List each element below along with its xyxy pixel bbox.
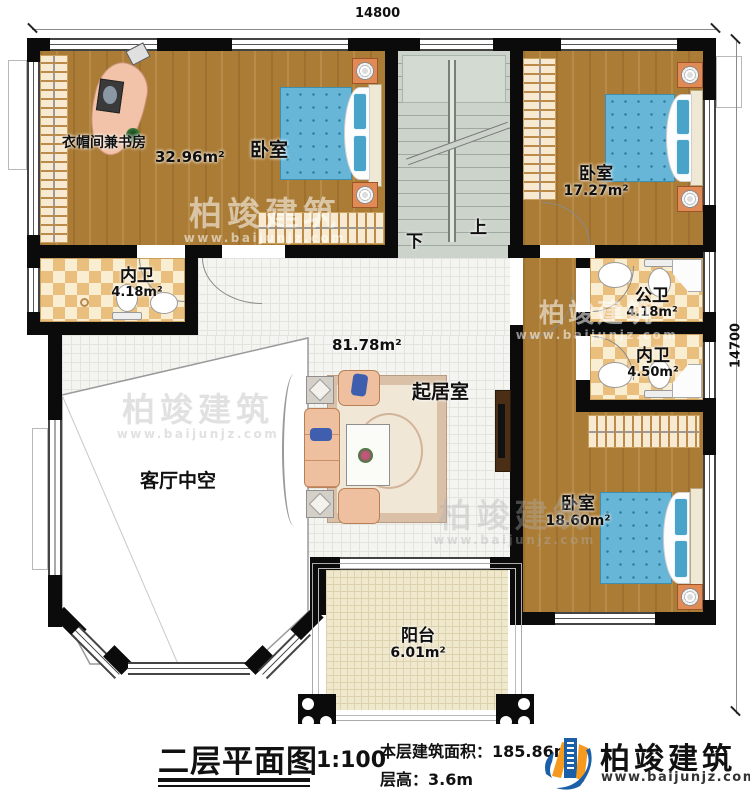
bed-right-pillow-2 [676, 139, 690, 175]
bed-top-headboard [368, 84, 382, 187]
title-underline [158, 778, 310, 782]
window-top-3 [420, 38, 493, 51]
bedroom-bottom-closet [588, 415, 700, 448]
living-area: 81.78m² [332, 338, 402, 354]
plan-scale: 1:100 [316, 748, 386, 773]
nightstand-right-2 [677, 186, 703, 212]
lamp-icon [681, 588, 699, 606]
plan-title: 二层平面图 [158, 736, 318, 781]
sill-left-bottom [32, 428, 48, 570]
bedroom-bottom-label: 卧室 18.60m² [538, 496, 618, 529]
lamp-icon [356, 186, 374, 204]
bay-window-bottom [128, 662, 250, 675]
bed-bottom-pillow-1 [674, 498, 688, 536]
brand-logo-icon [540, 730, 596, 792]
lamp-icon [681, 190, 699, 208]
wall-bathsR-bottom [576, 400, 703, 412]
toilet-tank-bathR [644, 390, 676, 398]
toilet-tank-bathL [112, 312, 142, 320]
bath-public-label: 公卫 4.18m² [617, 288, 687, 319]
bed-bottom-pillow-2 [674, 540, 688, 578]
stair-up-label: 上 [470, 220, 487, 238]
title-underline-thin [158, 785, 310, 787]
dimension-line-top [32, 29, 716, 30]
study-area: 32.96m² [155, 150, 225, 166]
tv-icon [498, 404, 505, 458]
void-railing-curve [282, 374, 306, 526]
bedroom-top-label: 卧室 [250, 141, 288, 161]
bath-right-label: 内卫 4.50m² [618, 348, 688, 379]
lamp-icon [356, 62, 374, 80]
dimension-line-right [736, 40, 737, 714]
lamp-icon [681, 66, 699, 84]
sill-right-top [716, 56, 742, 108]
study-label: 衣帽间兼书房 [62, 136, 146, 151]
brand-url: www.baijunjz.com [601, 770, 750, 785]
computer-screen [103, 86, 117, 104]
flower-icon [358, 448, 373, 463]
living-label: 起居室 [412, 383, 469, 403]
nightstand-top-2 [352, 182, 378, 208]
bedroom-top-closet [258, 212, 384, 244]
sill-left-top [8, 60, 27, 170]
wall-bathL-bottom [27, 322, 198, 335]
bedroom-right-closet [523, 58, 556, 200]
wall-mid-left-a [27, 245, 137, 258]
dimension-right-value: 14700 [729, 316, 744, 376]
wall-mid-left-c [285, 245, 385, 258]
stair-handrail [448, 60, 456, 242]
window-right-4 [703, 455, 716, 600]
bed-top-mattress [280, 87, 352, 180]
bedroom-right-label: 卧室 17.27m² [556, 166, 636, 199]
wall-stair-right [510, 38, 523, 258]
floor-height-text: 层高：3.6m [380, 766, 473, 790]
bed-right-pillow-1 [676, 99, 690, 135]
nightstand-bottom [677, 584, 703, 610]
window-right-2 [703, 252, 716, 312]
floor-plan: 下 上 [0, 0, 750, 724]
window-left-1 [27, 62, 40, 235]
bed-top-pillow-1 [353, 93, 367, 130]
wall-mid-right-b [595, 245, 703, 258]
balcony-label: 阳台 6.01m² [378, 628, 458, 661]
void-label: 客厅中空 [140, 472, 216, 492]
bed-bottom-headboard [690, 488, 703, 588]
nightstand-right-1 [677, 62, 703, 88]
toilet-tank-bathP [644, 259, 676, 267]
bath-left-label: 内卫 4.18m² [102, 268, 172, 299]
dim-tick [27, 23, 38, 34]
dimension-top-value: 14800 [352, 6, 403, 21]
wall-bathsR-left-a [576, 258, 590, 268]
wall-bedroom-bottom-a [523, 612, 555, 625]
bed-top-pillow-2 [353, 135, 367, 172]
sofa [304, 408, 340, 488]
wall-bathsR-divider [590, 322, 703, 334]
wall-bathsR-left-b [576, 312, 590, 336]
window-right-1 [703, 100, 716, 205]
window-bedroom-bottom [555, 612, 655, 625]
window-top-4 [561, 38, 677, 51]
stair-down-label: 下 [406, 234, 423, 252]
wall-stair-left [385, 38, 398, 258]
dim-tick [710, 23, 721, 34]
floor-drain-bathL [80, 298, 89, 307]
title-block: 二层平面图 1:100 本层建筑面积：185.86m² 层高：3.6m 柏竣建筑… [0, 724, 750, 794]
window-left-2 [27, 268, 40, 312]
wall-bedroom-bottom-b [655, 612, 716, 625]
window-top-2 [232, 38, 348, 51]
nightstand-top-1 [352, 58, 378, 84]
window-right-3 [703, 342, 716, 398]
sink-icon-bathP [598, 262, 632, 288]
wall-mid-right-a [508, 245, 540, 258]
floor-plan-page: 下 上 [0, 0, 750, 794]
person-figure-1 [351, 373, 369, 397]
end-table-2 [306, 490, 334, 518]
window-left-3 [48, 420, 62, 575]
person-figure-2 [310, 428, 332, 441]
armchair-bottom [338, 488, 380, 524]
end-table-1 [306, 376, 334, 404]
